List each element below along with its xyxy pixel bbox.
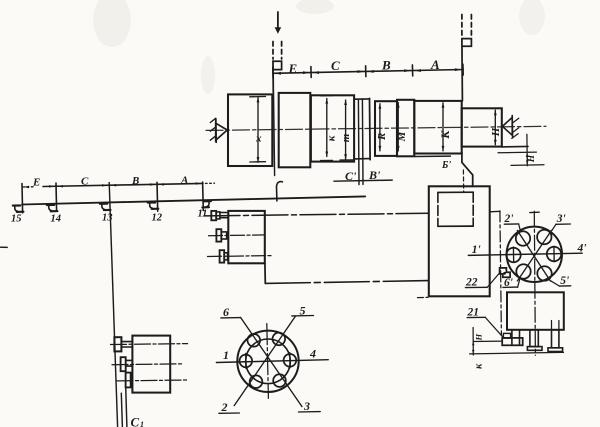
svg-text:C': C'	[345, 169, 357, 183]
svg-text:6: 6	[223, 305, 229, 319]
svg-text:к: к	[474, 363, 485, 369]
svg-text:Н: Н	[490, 127, 502, 137]
svg-text:4: 4	[309, 346, 316, 360]
svg-text:1': 1'	[472, 244, 481, 256]
svg-text:E: E	[32, 177, 40, 189]
svg-text:11: 11	[198, 209, 208, 220]
svg-text:21: 21	[467, 307, 480, 319]
svg-text:14: 14	[51, 214, 62, 225]
svg-text:C: C	[331, 58, 340, 73]
svg-text:B': B'	[368, 168, 381, 182]
svg-text:13: 13	[102, 213, 113, 224]
svg-text:к: к	[326, 135, 338, 141]
svg-text:3: 3	[303, 399, 310, 413]
svg-text:A: A	[430, 57, 440, 72]
svg-text:С: С	[131, 415, 140, 427]
svg-text:2': 2'	[504, 213, 514, 225]
svg-text:A: A	[180, 175, 188, 187]
svg-text:22: 22	[465, 276, 478, 288]
svg-text:4': 4'	[577, 242, 587, 254]
svg-text:т: т	[340, 133, 352, 142]
svg-text:12: 12	[152, 213, 163, 224]
svg-text:B: B	[381, 58, 391, 73]
svg-text:Н: Н	[474, 334, 484, 342]
svg-text:5: 5	[300, 303, 306, 317]
svg-text:3': 3'	[556, 213, 566, 225]
svg-text:5': 5'	[560, 275, 569, 287]
svg-text:1: 1	[140, 420, 144, 427]
svg-text:C: C	[81, 176, 89, 188]
svg-text:x: x	[255, 133, 262, 145]
svg-text:B: B	[131, 175, 139, 187]
svg-text:Н: Н	[527, 154, 537, 163]
svg-text:R: R	[376, 133, 388, 141]
svg-text:Б': Б'	[441, 160, 451, 171]
svg-text:E: E	[288, 61, 298, 76]
svg-text:1: 1	[223, 348, 229, 362]
svg-text:6': 6'	[504, 277, 513, 289]
svg-text:М: М	[396, 131, 408, 143]
svg-text:15: 15	[11, 214, 22, 225]
svg-text:2: 2	[221, 400, 228, 414]
svg-text:К: К	[438, 130, 452, 140]
